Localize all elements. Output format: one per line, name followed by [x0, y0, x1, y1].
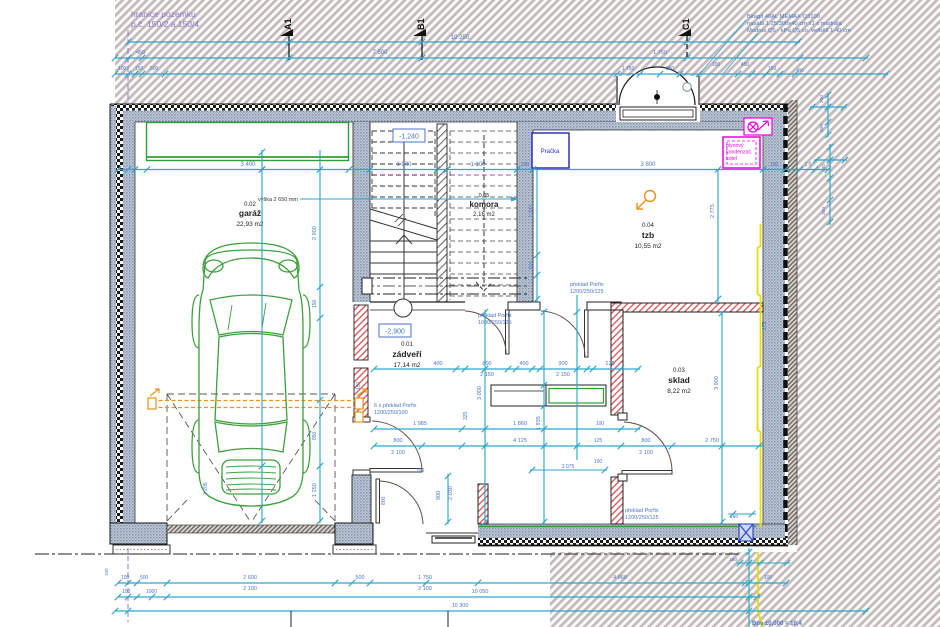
svg-text:komora: komora — [470, 200, 499, 209]
svg-text:150: 150 — [312, 299, 318, 308]
svg-text:1 750: 1 750 — [418, 575, 432, 581]
svg-text:1 860: 1 860 — [513, 421, 527, 427]
svg-text:3 205: 3 205 — [203, 482, 209, 495]
svg-text:900: 900 — [436, 491, 442, 500]
svg-text:plynový: plynový — [726, 143, 744, 149]
svg-text:1 900: 1 900 — [396, 162, 412, 168]
svg-text:2 030: 2 030 — [448, 486, 454, 500]
svg-text:překlad Porfix: překlad Porfix — [570, 282, 604, 288]
svg-text:125: 125 — [594, 438, 603, 444]
svg-text:2 150: 2 150 — [556, 372, 570, 378]
svg-text:400: 400 — [433, 361, 442, 367]
svg-text:2 900: 2 900 — [312, 226, 318, 240]
svg-text:180: 180 — [729, 557, 737, 563]
svg-text:850: 850 — [312, 431, 318, 440]
svg-text:800: 800 — [393, 438, 402, 444]
svg-text:325: 325 — [463, 411, 469, 420]
svg-text:100: 100 — [594, 459, 603, 465]
svg-text:6 x překlad Porfix: 6 x překlad Porfix — [374, 403, 417, 409]
svg-text:tzb: tzb — [642, 230, 654, 240]
svg-text:400: 400 — [519, 361, 528, 367]
svg-text:3 400: 3 400 — [240, 162, 256, 168]
svg-text:1 750: 1 750 — [653, 50, 667, 56]
svg-text:4 960: 4 960 — [613, 575, 627, 581]
svg-text:200: 200 — [521, 162, 530, 168]
svg-text:-2,900: -2,900 — [385, 329, 405, 336]
svg-text:p.č. 150/2 a 150/4: p.č. 150/2 a 150/4 — [131, 19, 199, 29]
svg-text:2 750: 2 750 — [705, 438, 719, 444]
svg-text:A1: A1 — [283, 18, 293, 30]
svg-text:900: 900 — [558, 361, 567, 367]
svg-text:1 935: 1 935 — [536, 416, 542, 430]
svg-text:2 100: 2 100 — [243, 586, 257, 592]
svg-text:150: 150 — [768, 66, 777, 72]
svg-text:100: 100 — [121, 575, 130, 581]
svg-text:překlad Porfix: překlad Porfix — [478, 313, 512, 319]
svg-text:4%: 4% — [796, 68, 804, 74]
svg-text:180: 180 — [730, 514, 738, 520]
svg-text:10 300: 10 300 — [452, 603, 469, 609]
svg-text:1200/250/100: 1200/250/100 — [374, 410, 408, 416]
svg-text:Pračka: Pračka — [541, 149, 560, 155]
svg-text:1 0: 1 0 — [805, 162, 812, 168]
svg-text:2,16 m2: 2,16 m2 — [473, 212, 495, 218]
svg-text:300: 300 — [819, 124, 825, 132]
svg-text:450: 450 — [136, 50, 145, 56]
svg-text:1200/250/125: 1200/250/125 — [625, 515, 659, 521]
svg-text:hranice pozemku: hranice pozemku — [131, 9, 196, 19]
svg-text:1 100: 1 100 — [470, 162, 486, 168]
svg-text:2 600: 2 600 — [243, 575, 257, 581]
svg-text:sklad: sklad — [668, 375, 690, 385]
svg-text:B1: B1 — [416, 18, 426, 30]
svg-text:0.04: 0.04 — [642, 223, 654, 229]
svg-text:2 150: 2 150 — [480, 372, 494, 378]
svg-text:100: 100 — [770, 162, 779, 168]
svg-text:3 900: 3 900 — [714, 376, 720, 390]
svg-text:22,93 m2: 22,93 m2 — [236, 221, 263, 228]
svg-text:100: 100 — [122, 589, 131, 595]
svg-text:2 100: 2 100 — [418, 586, 432, 592]
svg-text:17,14 m2: 17,14 m2 — [393, 362, 420, 369]
svg-text:100: 100 — [104, 568, 109, 576]
svg-text:100: 100 — [118, 66, 127, 72]
svg-text:3 000: 3 000 — [477, 386, 483, 400]
svg-text:100: 100 — [712, 62, 721, 68]
svg-text:100: 100 — [596, 421, 605, 427]
svg-text:3 800: 3 800 — [640, 162, 656, 168]
svg-text:Bpv ±0,000 = 10,4: Bpv ±0,000 = 10,4 — [752, 621, 802, 627]
svg-text:garáž: garáž — [239, 208, 261, 218]
svg-text:1200/250/125: 1200/250/125 — [570, 289, 604, 295]
svg-text:8,22 m2: 8,22 m2 — [667, 388, 691, 395]
svg-text:450: 450 — [741, 62, 750, 68]
svg-text:800: 800 — [641, 438, 650, 444]
svg-text:2 100: 2 100 — [391, 450, 405, 456]
svg-text:10,55 m2: 10,55 m2 — [634, 243, 661, 250]
svg-text:1 985: 1 985 — [413, 421, 427, 427]
svg-text:175: 175 — [762, 321, 768, 330]
svg-text:kotel: kotel — [726, 156, 737, 162]
svg-text:1000/250/125: 1000/250/125 — [478, 320, 512, 326]
svg-text:zádveří: zádveří — [392, 349, 422, 359]
svg-text:1 750: 1 750 — [622, 66, 635, 72]
svg-text:350: 350 — [666, 66, 675, 72]
svg-text:150: 150 — [135, 66, 144, 72]
svg-text:3 075: 3 075 — [562, 464, 575, 470]
svg-text:4 125: 4 125 — [513, 438, 527, 444]
svg-text:500: 500 — [140, 575, 149, 581]
svg-text:150: 150 — [529, 261, 535, 270]
svg-text:100: 100 — [764, 575, 773, 581]
svg-text:Mudrus Q5 - kPa Q5 co. veřběš: Mudrus Q5 - kPa Q5 co. veřběš 1,40 cm — [747, 28, 851, 34]
svg-text:0.01: 0.01 — [401, 342, 413, 348]
svg-text:2 775: 2 775 — [710, 204, 716, 218]
svg-text:1000: 1000 — [146, 589, 157, 595]
svg-text:500: 500 — [150, 66, 159, 72]
svg-text:2 100: 2 100 — [639, 450, 653, 456]
svg-text:-1,240: -1,240 — [399, 134, 419, 141]
svg-text:1 250: 1 250 — [312, 483, 318, 497]
svg-text:překlad Porfix: překlad Porfix — [625, 508, 659, 514]
svg-text:10 050: 10 050 — [472, 589, 489, 595]
svg-text:250: 250 — [819, 95, 825, 103]
svg-text:nasálá 1,25/300x40 cm x1 x mad: nasálá 1,25/300x40 cm x1 x madralá — [747, 21, 843, 27]
svg-text:800: 800 — [381, 496, 387, 505]
svg-text:7 500: 7 500 — [372, 50, 388, 56]
svg-text:300: 300 — [821, 207, 827, 215]
svg-text:kondenzač.: kondenzač. — [726, 150, 753, 156]
svg-text:Bitagit 40AL MEMAX Q3100: Bitagit 40AL MEMAX Q3100 — [747, 14, 820, 20]
svg-text:0.03: 0.03 — [673, 368, 685, 374]
svg-text:150: 150 — [356, 381, 362, 390]
svg-text:800: 800 — [482, 361, 491, 367]
svg-text:výška 2 650 mm: výška 2 650 mm — [258, 197, 298, 203]
svg-text:500: 500 — [355, 575, 364, 581]
svg-text:125: 125 — [605, 361, 614, 367]
svg-text:0.05: 0.05 — [479, 193, 490, 199]
svg-text:10 250: 10 250 — [451, 35, 470, 41]
svg-text:2 775: 2 775 — [529, 204, 535, 218]
svg-text:C1: C1 — [681, 18, 691, 30]
svg-text:100: 100 — [416, 468, 425, 474]
